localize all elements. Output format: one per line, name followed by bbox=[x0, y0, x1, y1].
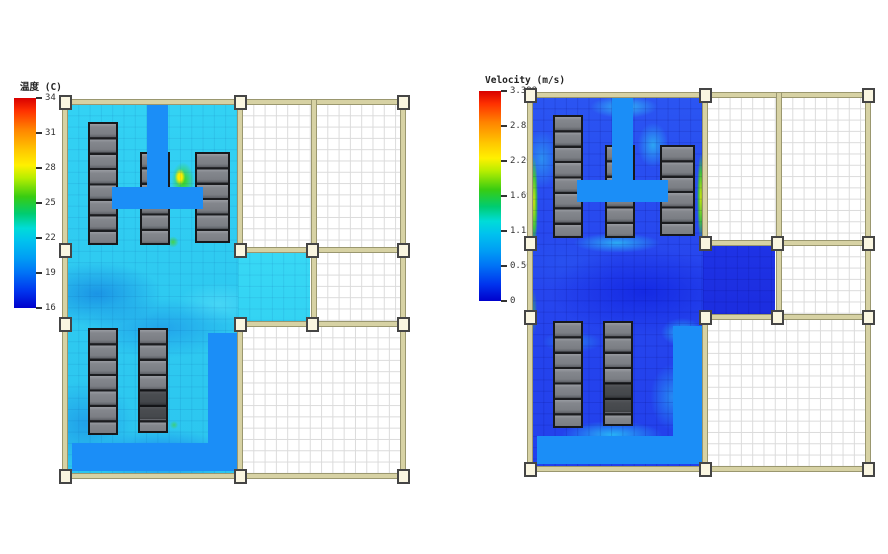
supply-duct-top-bar bbox=[112, 187, 203, 209]
velocity-colorbar bbox=[479, 91, 501, 301]
column-marker bbox=[771, 236, 784, 251]
temperature-legend-title: 温度 (C) bbox=[20, 79, 62, 93]
wall-corridor-bottom bbox=[703, 315, 870, 319]
wall-rooms-divider bbox=[777, 93, 781, 319]
temperature-colorbar bbox=[14, 98, 36, 308]
wall-left bbox=[528, 93, 532, 471]
wall-hall-divider-lower bbox=[238, 322, 242, 478]
supply-duct-top-stalk bbox=[612, 97, 633, 182]
column-marker bbox=[699, 462, 712, 477]
column-marker bbox=[306, 317, 319, 332]
velocity-corridor-contour bbox=[703, 245, 775, 315]
tick-dash-icon bbox=[501, 90, 507, 92]
column-marker bbox=[59, 317, 72, 332]
room-top-right-b bbox=[316, 104, 401, 248]
room-mid-right bbox=[316, 252, 401, 322]
temperature-corridor-contour bbox=[238, 252, 310, 322]
room-top-right-a bbox=[707, 97, 777, 241]
supply-duct-top-stalk bbox=[147, 104, 168, 189]
tick-label: 31 bbox=[45, 128, 56, 138]
room-bottom-right bbox=[707, 319, 866, 467]
temperature-contour-plan bbox=[63, 100, 405, 478]
tick: 19 bbox=[36, 268, 56, 278]
tick-dash-icon bbox=[36, 202, 42, 204]
column-marker bbox=[397, 317, 410, 332]
column-marker bbox=[862, 88, 875, 103]
column-marker bbox=[699, 310, 712, 325]
cfd-report-canvas: 温度 (C) 34 31 28 25 22 19 16 bbox=[0, 0, 888, 554]
tick-dash-icon bbox=[501, 125, 507, 127]
velocity-legend-title: Velocity (m/s) bbox=[485, 75, 565, 86]
room-mid-right bbox=[781, 245, 866, 315]
wall-corridor-bottom bbox=[238, 322, 405, 326]
tick-dash-icon bbox=[501, 265, 507, 267]
tick: 25 bbox=[36, 198, 56, 208]
column-marker bbox=[397, 243, 410, 258]
tick-dash-icon bbox=[36, 307, 42, 309]
room-top-right-b bbox=[781, 97, 866, 241]
supply-duct-bottom-vertical bbox=[208, 333, 238, 445]
supply-duct-bottom-vertical bbox=[673, 326, 703, 438]
tick: 16 bbox=[36, 303, 56, 313]
velocity-contour-plan bbox=[528, 93, 870, 471]
tick-dash-icon bbox=[36, 272, 42, 274]
column-marker bbox=[59, 243, 72, 258]
column-marker bbox=[862, 310, 875, 325]
column-marker bbox=[234, 243, 247, 258]
rack-dark-units bbox=[605, 382, 631, 412]
rack-dark-units bbox=[140, 389, 166, 419]
tick-label: 28 bbox=[45, 163, 56, 173]
column-marker bbox=[397, 469, 410, 484]
column-marker bbox=[771, 310, 784, 325]
column-marker bbox=[862, 462, 875, 477]
wall-hall-divider-upper bbox=[703, 93, 707, 245]
wall-hall-divider-lower bbox=[703, 315, 707, 471]
column-marker bbox=[862, 236, 875, 251]
temperature-legend: 温度 (C) 34 31 28 25 22 19 16 bbox=[14, 79, 62, 313]
tick-label: 0 bbox=[510, 296, 515, 306]
column-marker bbox=[59, 469, 72, 484]
column-marker bbox=[306, 243, 319, 258]
room-top-right-a bbox=[242, 104, 312, 248]
temperature-colorbar-ticks: 34 31 28 25 22 19 16 bbox=[36, 93, 56, 313]
tick-dash-icon bbox=[36, 237, 42, 239]
wall-rooms-divider bbox=[312, 100, 316, 326]
column-marker bbox=[699, 88, 712, 103]
tick-dash-icon bbox=[36, 132, 42, 134]
rack-row-bottom-left bbox=[553, 321, 583, 428]
tick-label: 22 bbox=[45, 233, 56, 243]
rack-row-bottom-left bbox=[88, 328, 118, 435]
column-marker bbox=[234, 469, 247, 484]
column-marker bbox=[524, 236, 537, 251]
tick-label: 34 bbox=[45, 93, 56, 103]
column-marker bbox=[524, 88, 537, 103]
tick: 28 bbox=[36, 163, 56, 173]
tick-dash-icon bbox=[501, 160, 507, 162]
tick-dash-icon bbox=[36, 167, 42, 169]
column-marker bbox=[59, 95, 72, 110]
wall-corridor-top bbox=[703, 241, 870, 245]
tick: 34 bbox=[36, 93, 56, 103]
tick-label: 25 bbox=[45, 198, 56, 208]
supply-duct-top-bar bbox=[577, 180, 668, 202]
rack-row-top-left bbox=[88, 122, 118, 245]
wall-right bbox=[866, 93, 870, 471]
wall-right bbox=[401, 100, 405, 478]
wall-corridor-top bbox=[238, 248, 405, 252]
supply-duct-bottom-bar bbox=[72, 443, 238, 471]
tick-label: 16 bbox=[45, 303, 56, 313]
supply-duct-bottom-bar bbox=[537, 436, 703, 464]
wall-hall-divider-upper bbox=[238, 100, 242, 252]
wall-left bbox=[63, 100, 67, 478]
column-marker bbox=[397, 95, 410, 110]
room-bottom-right bbox=[242, 326, 401, 474]
tick-label: 19 bbox=[45, 268, 56, 278]
rack-row-top-left bbox=[553, 115, 583, 238]
column-marker bbox=[234, 317, 247, 332]
tick-dash-icon bbox=[501, 195, 507, 197]
tick: 22 bbox=[36, 233, 56, 243]
column-marker bbox=[524, 462, 537, 477]
tick-dash-icon bbox=[501, 300, 507, 302]
tick: 31 bbox=[36, 128, 56, 138]
column-marker bbox=[234, 95, 247, 110]
column-marker bbox=[699, 236, 712, 251]
tick-dash-icon bbox=[36, 97, 42, 99]
temperature-legend-body: 34 31 28 25 22 19 16 bbox=[14, 98, 62, 313]
column-marker bbox=[524, 310, 537, 325]
tick-dash-icon bbox=[501, 230, 507, 232]
